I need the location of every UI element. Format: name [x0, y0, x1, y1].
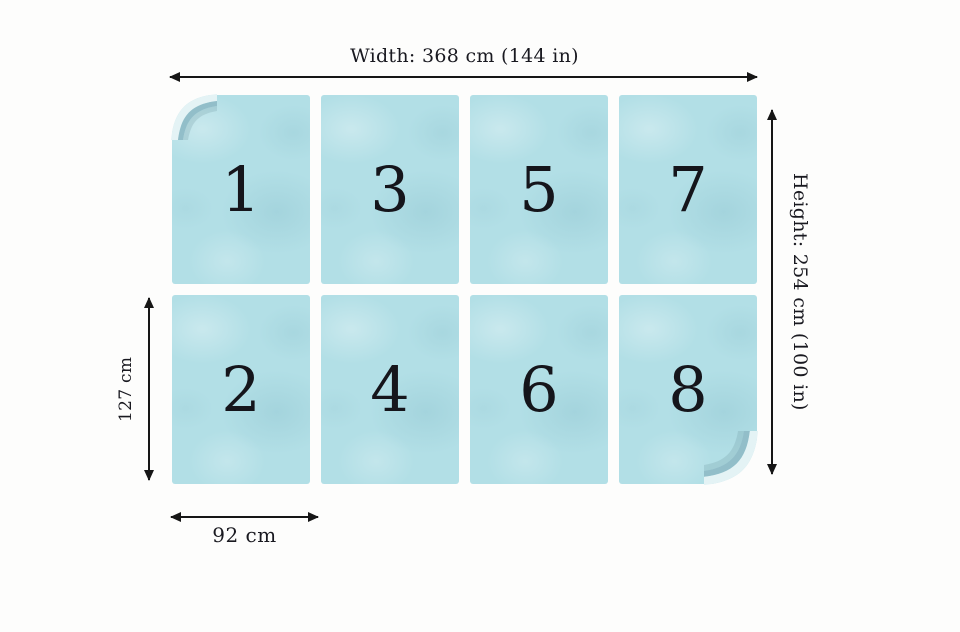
width-dimension-arrow — [170, 76, 757, 78]
panel-number: 2 — [221, 359, 260, 421]
panel-1: 1 — [172, 95, 310, 284]
panel-number: 7 — [668, 159, 707, 221]
panel-height-dimension-arrow — [148, 298, 150, 480]
panel-number: 4 — [370, 359, 409, 421]
panel-number: 8 — [668, 359, 707, 421]
panel-width-dimension-label: 92 cm — [171, 523, 318, 547]
panel-8: 8 — [619, 295, 757, 484]
panel-4: 4 — [321, 295, 459, 484]
page-curl-top-left — [171, 94, 217, 140]
height-dimension-label: Height: 254 cm (100 in) — [786, 102, 814, 482]
panel-width-dimension-arrow — [171, 516, 318, 518]
width-dimension-label: Width: 368 cm (144 in) — [172, 45, 757, 67]
page-curl-bottom-right — [704, 431, 758, 485]
panel-3: 3 — [321, 95, 459, 284]
panel-7: 7 — [619, 95, 757, 284]
height-dimension-arrow — [771, 110, 773, 474]
mural-panel-dimension-diagram: Width: 368 cm (144 in) 1 3 5 7 2 4 — [0, 0, 960, 632]
panel-2: 2 — [172, 295, 310, 484]
panel-5: 5 — [470, 95, 608, 284]
panel-number: 5 — [519, 159, 558, 221]
panel-number: 1 — [221, 159, 260, 221]
panel-number: 6 — [519, 359, 558, 421]
panel-6: 6 — [470, 295, 608, 484]
panel-number: 3 — [370, 159, 409, 221]
panel-grid: 1 3 5 7 2 4 6 8 — [172, 95, 757, 484]
panel-height-dimension-label: 127 cm — [112, 298, 140, 480]
